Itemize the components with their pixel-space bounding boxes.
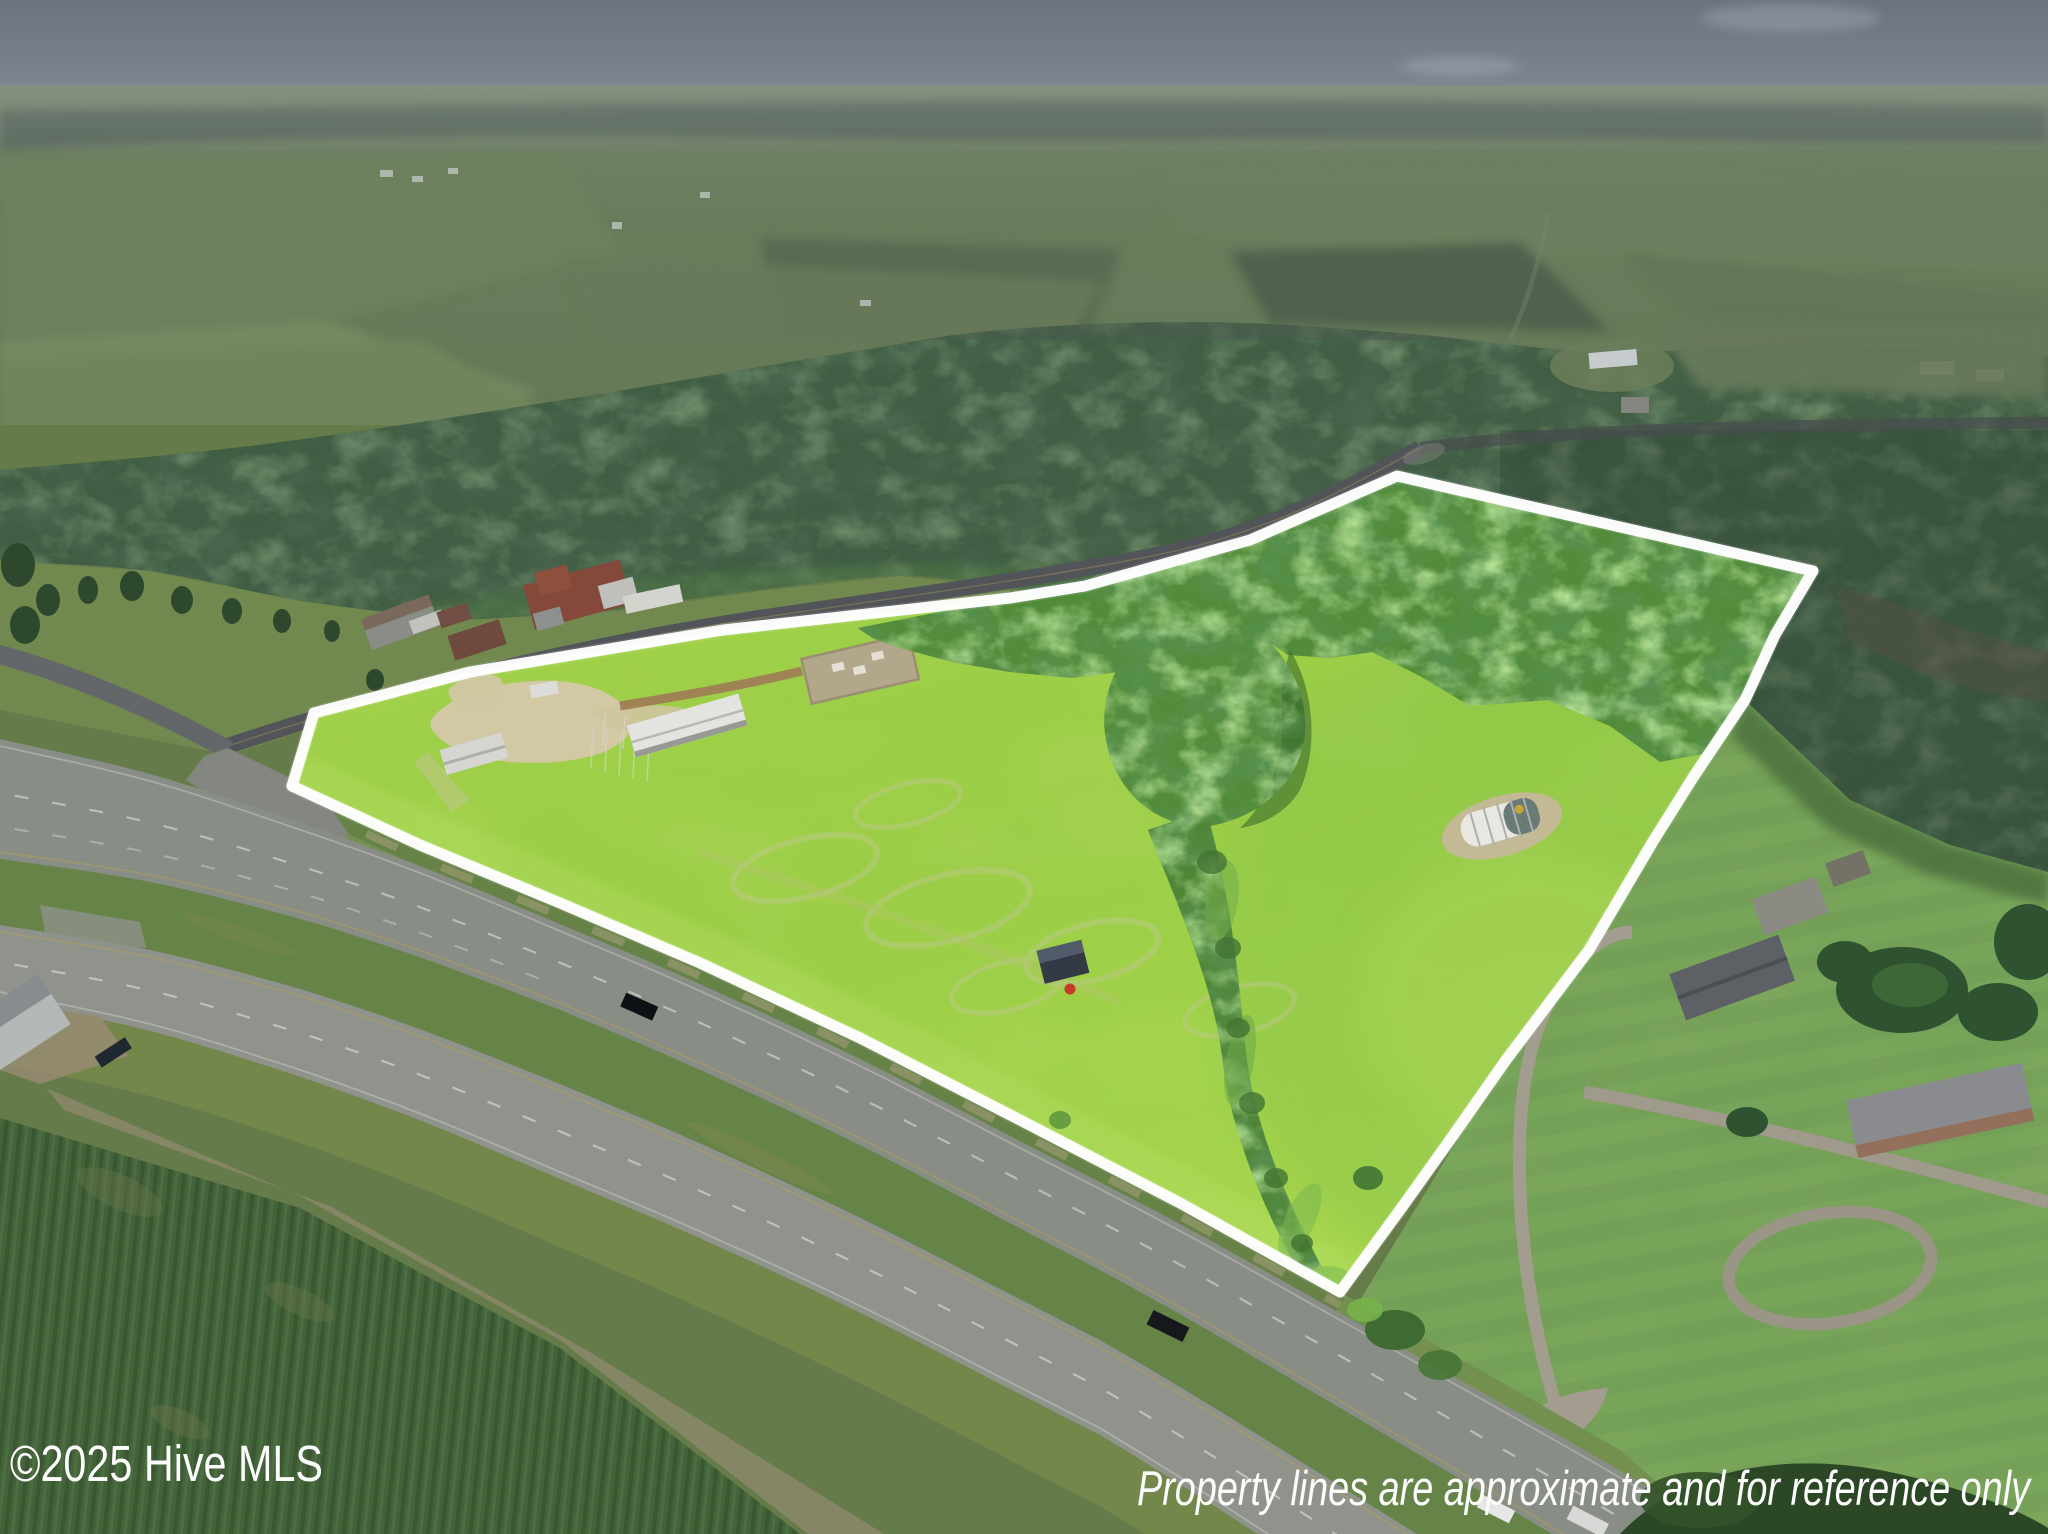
svg-text:©2025 Hive MLS: ©2025 Hive MLS bbox=[10, 1435, 323, 1492]
svg-text:Property lines are approximate: Property lines are approximate and for r… bbox=[1137, 1462, 2032, 1516]
